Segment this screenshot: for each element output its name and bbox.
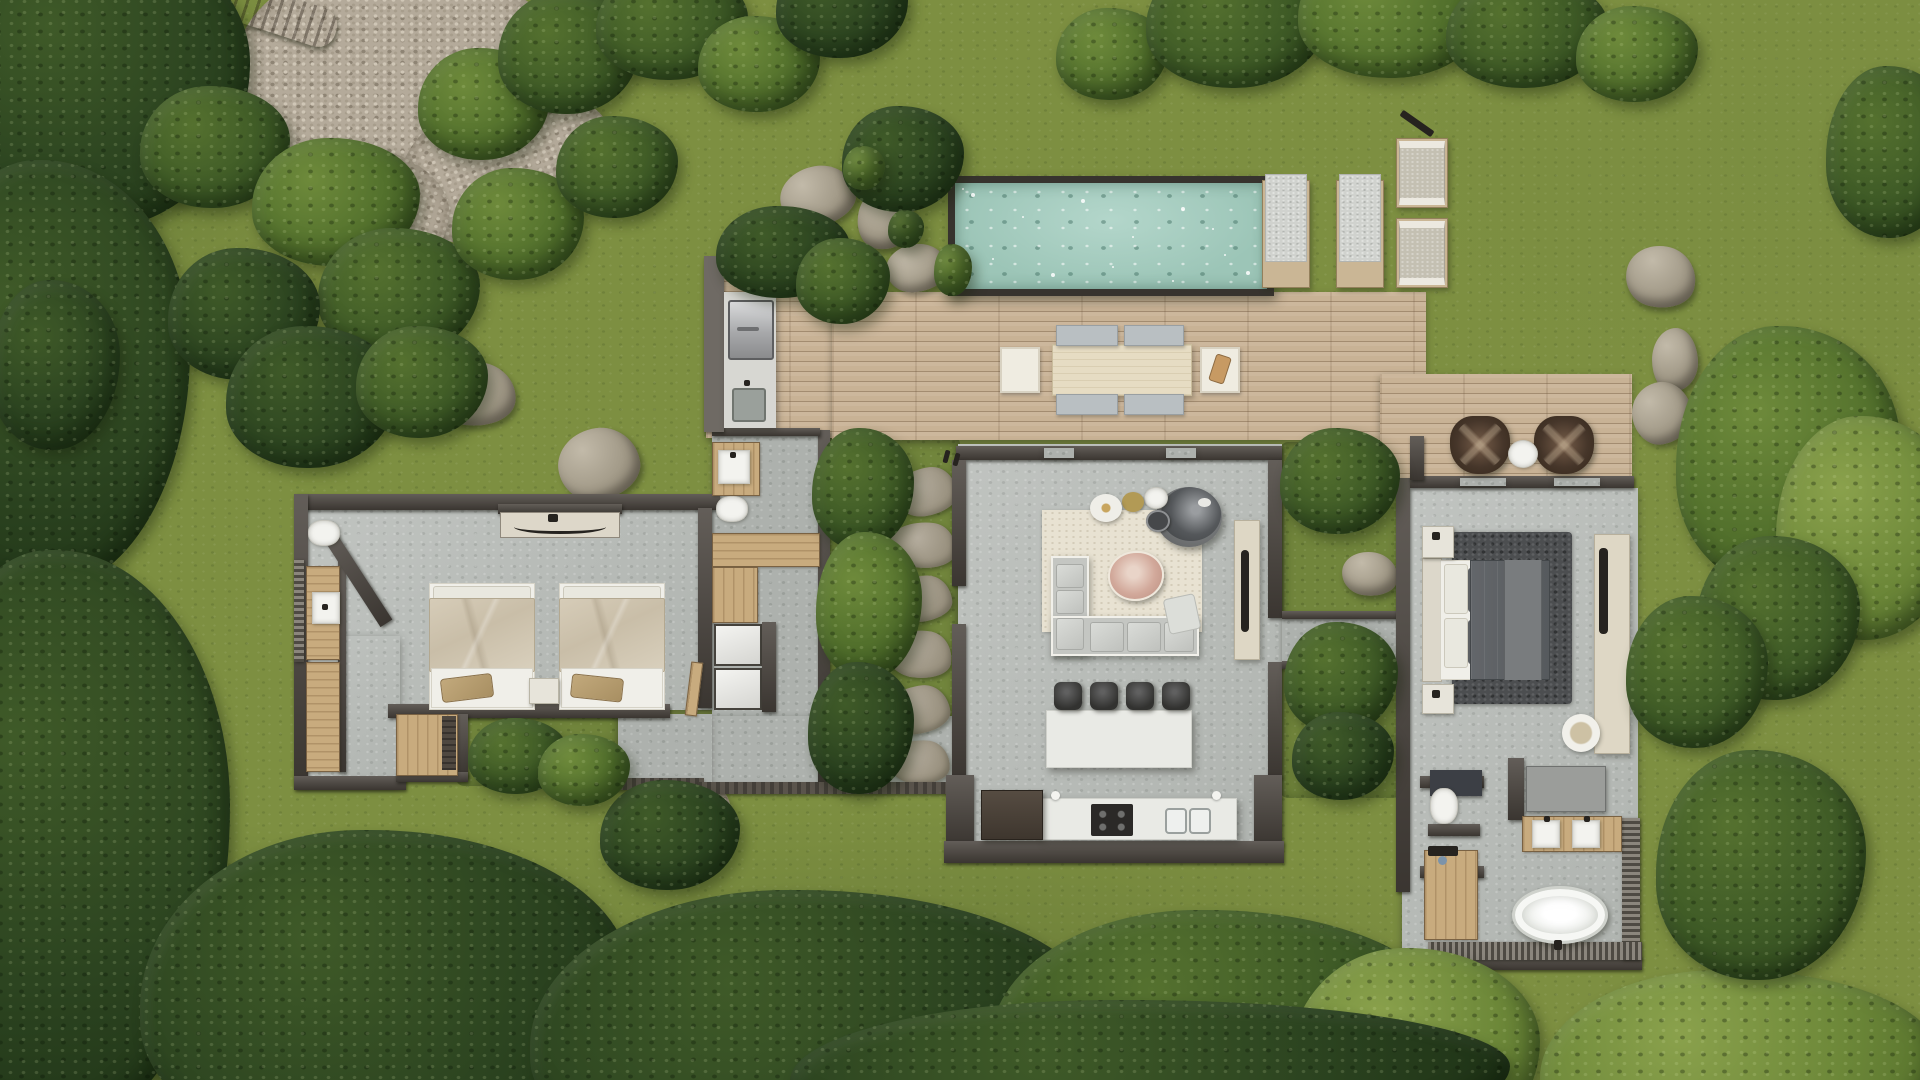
cooktop [1091, 804, 1133, 836]
dryer [714, 668, 762, 710]
dining-bench-bottom-right [1124, 394, 1184, 415]
console-art-chip [548, 514, 558, 522]
living-top-door-gap-b [1166, 448, 1196, 458]
left-wing-west-bottom-wall [294, 776, 406, 790]
corridor-l-counter-h [712, 533, 820, 567]
sofa-cushion-1 [1056, 564, 1084, 588]
master-throw [1504, 560, 1542, 680]
kitchen-bottom-wall [944, 841, 1284, 863]
daybed-1-cushion [1399, 141, 1445, 205]
dining-bench-bottom-left [1056, 394, 1118, 415]
master-lamp-bottom [1432, 690, 1440, 698]
master-top-door-gap-a [1460, 478, 1506, 486]
shower-fixture-bar [1428, 846, 1458, 856]
kitchen-faucet-left [1051, 791, 1060, 800]
boulder-right-a [1619, 238, 1703, 316]
bar-stool-1 [1054, 682, 1082, 710]
bush-left-8 [556, 116, 678, 218]
bush-top-right-4 [1576, 6, 1698, 102]
side-table-dark [1146, 510, 1170, 532]
kitchen-pillar-west [946, 775, 974, 845]
sofa-cushion-corner [1056, 618, 1084, 650]
bath-niche-bottom-wall [1428, 824, 1480, 836]
freestanding-bathtub [1512, 886, 1608, 944]
shower-head [1438, 856, 1447, 865]
bbq-grill [728, 300, 774, 360]
kitchen-faucet-right [1212, 791, 1221, 800]
corridor-faucet [730, 452, 736, 458]
dining-armchair-west [1000, 347, 1040, 393]
connector-top-edge [1282, 611, 1404, 619]
left-patio-bench [442, 716, 456, 770]
terrace-side-table [1508, 440, 1538, 468]
master-shower-floor [1424, 850, 1478, 940]
butterfly-chair-east [1534, 416, 1594, 474]
sofa-cushion-2 [1056, 590, 1084, 614]
bar-stool-2 [1090, 682, 1118, 710]
vanity-sink-left [1532, 820, 1560, 848]
guest-bed-1-duvet [429, 598, 535, 672]
living-tv [1241, 550, 1249, 632]
side-table-white [1144, 487, 1168, 509]
kitchen-island [1046, 710, 1192, 768]
living-west-wall-b [952, 624, 966, 778]
pocket-bush-b [538, 734, 630, 806]
corridor-l-counter-v [712, 567, 758, 623]
master-top-door-gap-b [1554, 478, 1600, 486]
sofa-cushion-4 [1127, 622, 1161, 652]
round-table-small [1090, 494, 1122, 522]
master-wall-stub-top [1410, 436, 1424, 480]
aerial-site-plan: Aerial top-down 3D floor plan of a tropi… [0, 0, 1920, 1080]
bush-entry [600, 780, 740, 890]
master-pillow-bottom [1444, 618, 1468, 668]
kitchen-sink-bowl-left [1165, 808, 1187, 834]
vanity-faucet-right [1584, 816, 1590, 822]
bush-right-edge [1826, 66, 1920, 238]
bath-divider-wall [1508, 758, 1524, 820]
bedroom-exit-slab [618, 714, 712, 784]
umbrella-pole [1399, 110, 1434, 138]
left-louver-screen [294, 560, 304, 662]
living-west-wall-a [952, 460, 966, 586]
left-bath-floor-lower [306, 662, 340, 772]
bath-louver-east [1622, 818, 1640, 960]
foliage-bottom-e [1540, 970, 1920, 1080]
side-table-gold [1122, 492, 1144, 512]
bush-beside-bath [1626, 596, 1768, 748]
living-top-wall [956, 446, 1282, 460]
appliance-side-panel [762, 622, 776, 712]
bar-stool-3 [1126, 682, 1154, 710]
bath-gray-cabinet [1526, 766, 1606, 812]
kitchen-dark-cabinet [981, 790, 1043, 840]
master-toilet [1430, 788, 1458, 824]
sun-lounger-1-cushion [1265, 174, 1307, 262]
vanity-sink-right [1572, 820, 1600, 848]
console-art-arc [514, 520, 606, 534]
guest-bed-2-duvet [559, 598, 665, 672]
guest-nightstand [529, 678, 559, 704]
living-top-door-gap-a [1044, 448, 1074, 458]
corridor-toilet [716, 496, 748, 522]
outdoor-kitchen-privacy-wall [704, 256, 724, 432]
washer [714, 624, 762, 666]
master-nightstand-top [1422, 526, 1454, 558]
outdoor-sink-faucet [744, 380, 750, 386]
sofa-cushion-3 [1090, 622, 1124, 652]
patio-side-wall [458, 714, 468, 778]
master-lamp-top [1432, 532, 1440, 540]
kitchen-pillar-east [1254, 775, 1282, 845]
master-nightstand-bottom [1422, 684, 1454, 714]
kitchen-sink-bowl-right [1189, 808, 1211, 834]
living-east-wall-b [1268, 662, 1282, 778]
master-top-wall [1410, 476, 1634, 488]
master-pillow-top [1444, 564, 1468, 614]
master-headboard [1422, 558, 1442, 682]
bar-stool-4 [1162, 682, 1190, 710]
dining-bench-top-right [1124, 325, 1184, 346]
master-pouf [1562, 714, 1600, 752]
swimming-pool [948, 176, 1274, 296]
dining-bench-top-left [1056, 325, 1118, 346]
boulder-mid-left-b [553, 423, 644, 506]
daybed-2-cushion [1399, 221, 1445, 285]
master-tv [1599, 548, 1608, 634]
master-west-wall [1396, 478, 1410, 892]
left-bath-toilet [308, 520, 340, 546]
dining-table [1052, 344, 1192, 396]
corridor-top-wall [712, 428, 820, 436]
outdoor-sink [732, 388, 766, 422]
left-bath-faucet [322, 604, 328, 610]
sun-lounger-2-cushion [1339, 174, 1381, 262]
palm-pool-b [888, 210, 924, 248]
bathtub-faucet [1554, 940, 1562, 950]
vanity-faucet-left [1544, 816, 1550, 822]
bush-below-right [1656, 750, 1866, 980]
butterfly-chair-west [1450, 416, 1510, 474]
